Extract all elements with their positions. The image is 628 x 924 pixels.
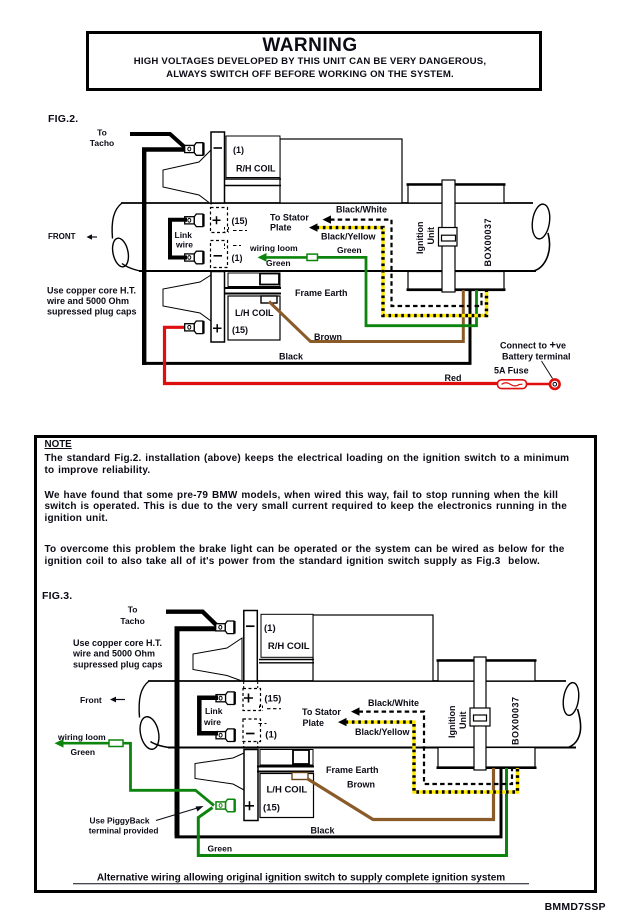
svg-text:FIG.2.: FIG.2. — [48, 113, 78, 125]
svg-text:Green: Green — [208, 843, 233, 853]
svg-text:(1): (1) — [264, 623, 276, 634]
svg-text:(15): (15) — [263, 803, 280, 814]
svg-text:(15): (15) — [232, 325, 248, 335]
svg-text:supressed plug caps: supressed plug caps — [47, 307, 137, 317]
svg-text:Red: Red — [445, 373, 462, 383]
svg-text:Plate: Plate — [270, 223, 292, 233]
svg-text:To Stator: To Stator — [270, 213, 309, 223]
svg-text:BMMD7SSP: BMMD7SSP — [545, 901, 606, 913]
svg-text:5A Fuse: 5A Fuse — [494, 365, 529, 375]
svg-text:Tacho: Tacho — [90, 138, 114, 148]
svg-text:Black/Yellow: Black/Yellow — [321, 232, 377, 242]
svg-text:wire: wire — [175, 239, 193, 249]
svg-text:Black: Black — [311, 826, 336, 836]
svg-text:Green: Green — [337, 245, 362, 255]
svg-text:Battery terminal: Battery terminal — [502, 351, 571, 361]
svg-text:BOX00037: BOX00037 — [483, 218, 493, 267]
svg-text:Green: Green — [266, 258, 291, 268]
svg-text:Green: Green — [71, 747, 96, 757]
svg-text:(15): (15) — [264, 694, 281, 705]
svg-text:FIG.3.: FIG.3. — [42, 590, 72, 602]
svg-text:Use copper core H.T.: Use copper core H.T. — [73, 638, 162, 648]
svg-text:Ignition: Ignition — [415, 222, 425, 255]
svg-text:wiring loom: wiring loom — [57, 732, 106, 742]
svg-text:Front: Front — [80, 695, 102, 705]
svg-text:To: To — [97, 128, 107, 138]
svg-text:Unit: Unit — [458, 712, 468, 730]
svg-text:terminal provided: terminal provided — [89, 826, 159, 836]
svg-text:wiring loom: wiring loom — [249, 243, 298, 253]
svg-text:BOX00037: BOX00037 — [511, 696, 521, 745]
svg-text:Black/White: Black/White — [368, 698, 419, 708]
svg-text:L/H COIL: L/H COIL — [267, 785, 308, 796]
svg-text:Use copper core H.T.: Use copper core H.T. — [47, 286, 136, 296]
svg-text:To Stator: To Stator — [302, 707, 341, 717]
svg-text:(1): (1) — [265, 729, 277, 740]
svg-text:(1): (1) — [232, 253, 243, 263]
svg-text:Brown: Brown — [347, 780, 375, 790]
svg-text:(1): (1) — [233, 145, 244, 155]
svg-text:wire: wire — [203, 717, 221, 727]
svg-text:(15): (15) — [232, 216, 248, 226]
svg-text:wire and 5000 Ohm: wire and 5000 Ohm — [72, 649, 155, 659]
svg-text:Brown: Brown — [314, 332, 342, 342]
svg-text:Black: Black — [279, 352, 304, 362]
svg-text:R/H COIL: R/H COIL — [268, 641, 310, 652]
svg-text:wire and 5000 Ohm: wire and 5000 Ohm — [46, 296, 129, 306]
svg-text:L/H COIL: L/H COIL — [235, 308, 274, 318]
svg-text:Link: Link — [205, 706, 223, 716]
svg-text:Use PiggyBack: Use PiggyBack — [90, 816, 150, 826]
svg-text:Frame Earth: Frame Earth — [295, 288, 348, 298]
svg-text:Frame Earth: Frame Earth — [326, 765, 379, 775]
svg-text:Black/White: Black/White — [336, 204, 387, 214]
svg-text:Ignition: Ignition — [447, 706, 457, 739]
svg-text:FRONT: FRONT — [48, 232, 76, 241]
svg-text:To: To — [128, 605, 138, 615]
svg-text:Black/Yellow: Black/Yellow — [355, 727, 411, 737]
svg-text:Alternative wiring allowing or: Alternative wiring allowing original ign… — [97, 872, 505, 883]
svg-text:R/H COIL: R/H COIL — [236, 164, 276, 174]
svg-text:Plate: Plate — [303, 718, 325, 728]
svg-text:supressed plug caps: supressed plug caps — [73, 659, 163, 669]
svg-text:Connect to +ve: Connect to +ve — [500, 340, 566, 352]
svg-text:Tacho: Tacho — [120, 616, 144, 626]
svg-text:Unit: Unit — [426, 227, 436, 245]
